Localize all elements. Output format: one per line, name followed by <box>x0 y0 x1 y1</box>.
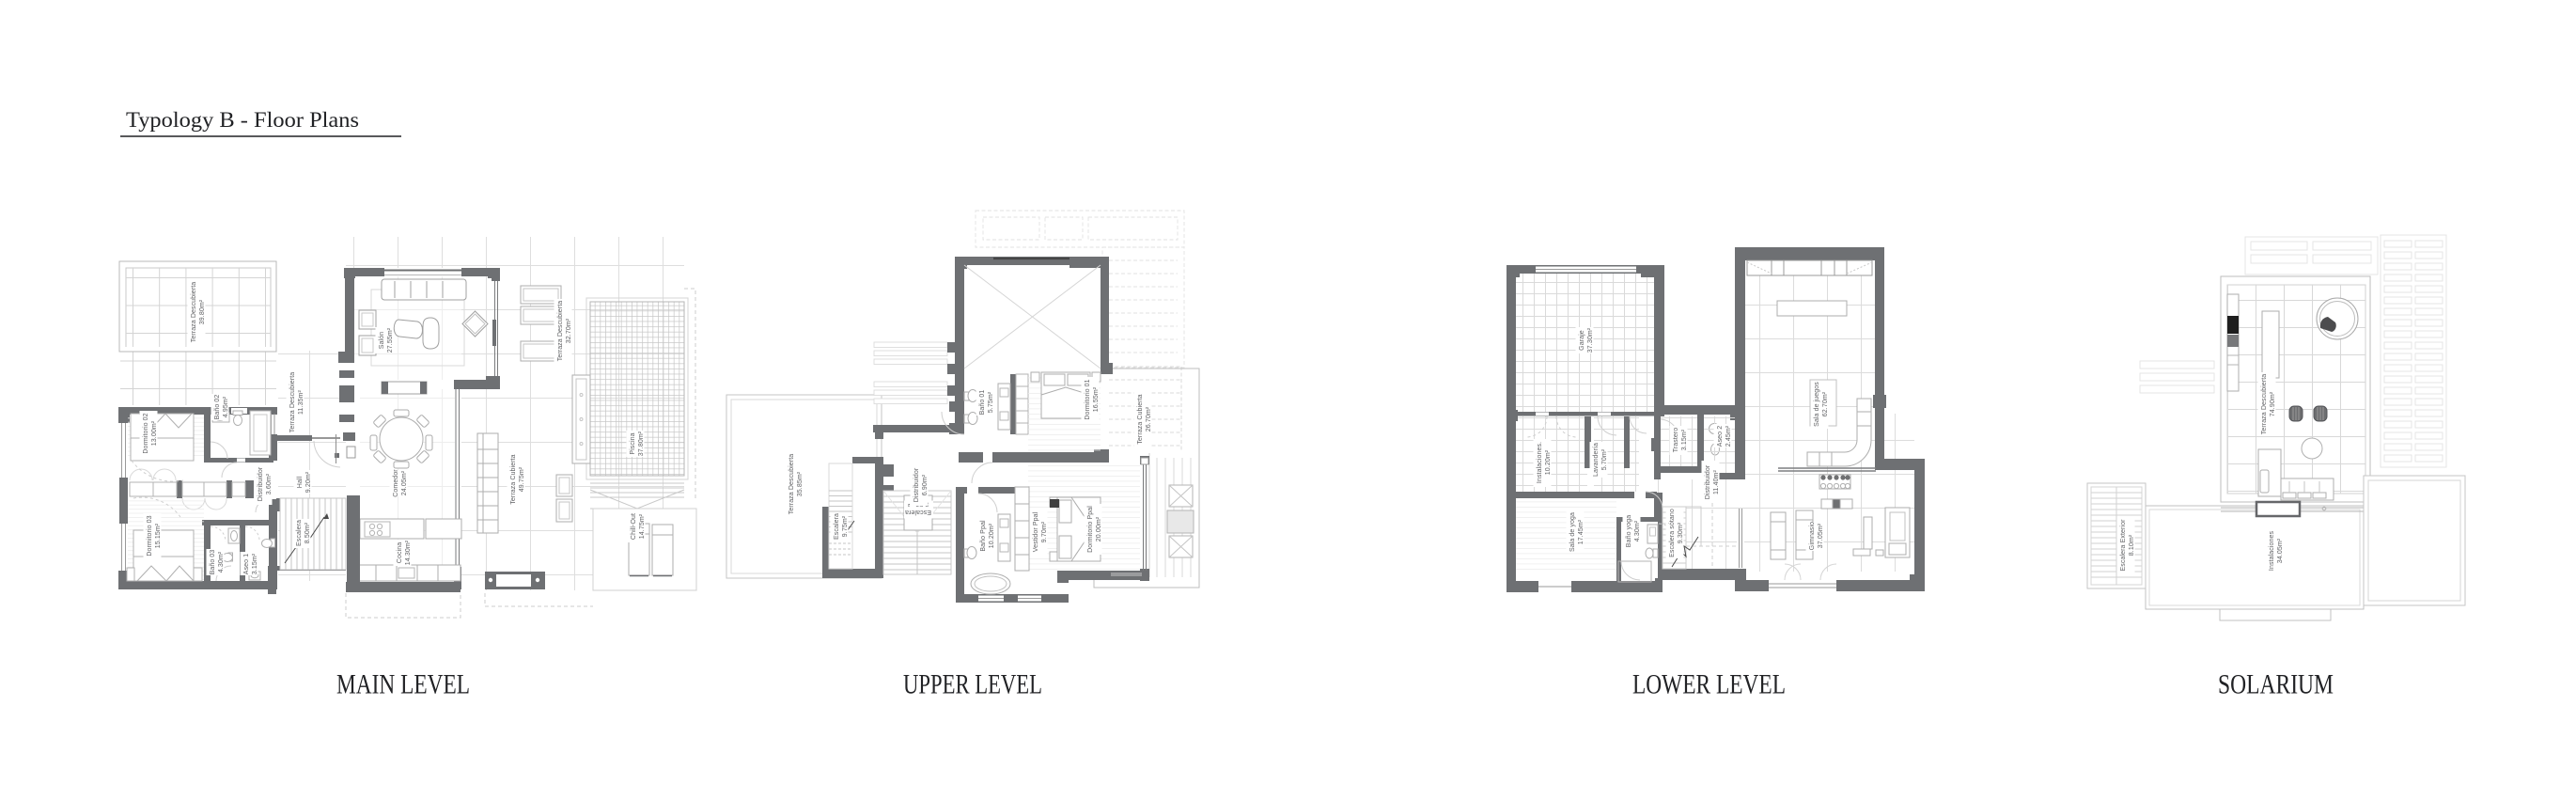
svg-text:14.75m²: 14.75m² <box>639 513 646 539</box>
svg-text:20.00m²: 20.00m² <box>1096 516 1102 541</box>
svg-text:Hall: Hall <box>297 476 304 488</box>
svg-text:13.00m²: 13.00m² <box>151 420 158 446</box>
svg-text:15.15m²: 15.15m² <box>155 523 162 548</box>
svg-text:Terraza Descubierta: Terraza Descubierta <box>557 301 564 362</box>
svg-text:8.50m²: 8.50m² <box>304 522 311 543</box>
svg-text:10.20m²: 10.20m² <box>1545 449 1552 475</box>
svg-text:32.70m²: 32.70m² <box>566 318 572 343</box>
svg-text:Chill-Out: Chill-Out <box>631 513 637 540</box>
svg-text:3.60m²: 3.60m² <box>266 473 273 494</box>
svg-text:39.80m²: 39.80m² <box>199 299 206 324</box>
svg-text:9.75m²: 9.75m² <box>842 515 849 537</box>
svg-text:Aseo 2: Aseo 2 <box>1717 426 1724 447</box>
svg-text:Baño yoga: Baño yoga <box>1626 515 1632 547</box>
svg-text:5.70m²: 5.70m² <box>1601 448 1608 470</box>
svg-text:Distribuidor: Distribuidor <box>258 466 264 501</box>
svg-text:49.75m²: 49.75m² <box>519 466 525 492</box>
svg-text:Instalaciones.: Instalaciones. <box>1537 442 1543 483</box>
svg-text:Baño Ppal: Baño Ppal <box>980 520 987 552</box>
svg-text:Terraza Cubierta: Terraza Cubierta <box>510 454 517 504</box>
svg-text:LOWER LEVEL: LOWER LEVEL <box>1632 669 1786 700</box>
svg-text:Aseo 1: Aseo 1 <box>243 554 250 574</box>
svg-text:Escalera: Escalera <box>296 520 303 546</box>
svg-text:11.40m²: 11.40m² <box>1713 470 1720 494</box>
svg-text:27.55m²: 27.55m² <box>387 327 394 353</box>
svg-text:SOLARIUM: SOLARIUM <box>2218 669 2334 700</box>
svg-text:Terraza Descubierta: Terraza Descubierta <box>788 454 795 515</box>
svg-text:Sala de juegos: Sala de juegos <box>1814 382 1820 427</box>
svg-text:11.35m²: 11.35m² <box>298 390 304 415</box>
svg-text:Vestidor Ppal: Vestidor Ppal <box>1033 511 1039 552</box>
svg-text:4.30m²: 4.30m² <box>218 551 225 573</box>
svg-text:34.05m²: 34.05m² <box>2277 538 2284 563</box>
svg-text:Escalera: Escalera <box>834 513 840 540</box>
svg-text:Gimnasio: Gimnasio <box>1809 522 1816 550</box>
svg-text:Comedor: Comedor <box>393 469 399 497</box>
svg-text:5.75m²: 5.75m² <box>988 391 994 413</box>
svg-text:Dormitorio 01: Dormitorio 01 <box>1085 379 1091 419</box>
svg-text:Terraza Descubierta: Terraza Descubierta <box>2261 374 2268 435</box>
svg-text:Typology B - Floor Plans: Typology B - Floor Plans <box>126 108 359 133</box>
svg-text:Baño 02: Baño 02 <box>214 395 221 420</box>
svg-text:4.95m²: 4.95m² <box>223 396 229 417</box>
svg-text:37.30m²: 37.30m² <box>1587 327 1594 353</box>
svg-text:16.55m²: 16.55m² <box>1093 386 1100 412</box>
svg-text:Distribuidor: Distribuidor <box>913 467 920 502</box>
svg-text:14.30m²: 14.30m² <box>405 540 412 565</box>
svg-text:9.20m²: 9.20m² <box>305 471 312 493</box>
svg-text:37.80m²: 37.80m² <box>638 431 645 456</box>
svg-text:2.45m²: 2.45m² <box>1725 425 1732 447</box>
svg-text:62.70m²: 62.70m² <box>1822 391 1829 416</box>
svg-text:MAIN LEVEL: MAIN LEVEL <box>336 669 470 700</box>
svg-text:8.10m²: 8.10m² <box>2129 534 2135 556</box>
svg-text:Dormitorio 02: Dormitorio 02 <box>143 413 149 453</box>
svg-text:Terraza Descubierta: Terraza Descubierta <box>289 372 296 433</box>
svg-text:Baño 01: Baño 01 <box>979 390 986 416</box>
svg-text:10.20m²: 10.20m² <box>989 523 995 548</box>
svg-text:35.85m²: 35.85m² <box>797 471 804 496</box>
svg-text:Piscina: Piscina <box>630 432 636 454</box>
svg-text:3.15m²: 3.15m² <box>1681 429 1688 450</box>
svg-text:Escalera sótano: Escalera sótano <box>1669 509 1676 557</box>
svg-text:Terraza Descubierta: Terraza Descubierta <box>191 282 197 343</box>
svg-text:Escalera: Escalera <box>905 509 931 515</box>
svg-text:Lavandería: Lavandería <box>1593 443 1600 477</box>
svg-text:Garaje: Garaje <box>1579 330 1585 351</box>
svg-text:9.70m²: 9.70m² <box>1041 521 1048 542</box>
svg-text:Trastero: Trastero <box>1673 428 1679 453</box>
svg-text:Dormitorio 03: Dormitorio 03 <box>147 515 153 556</box>
svg-text:9.30m²: 9.30m² <box>1678 522 1684 543</box>
svg-text:Instalaciones: Instalaciones <box>2269 531 2275 572</box>
svg-text:6.90m²: 6.90m² <box>922 474 929 495</box>
svg-text:Dormitorio Ppal: Dormitorio Ppal <box>1087 506 1094 553</box>
svg-text:Escalera Exterior: Escalera Exterior <box>2120 519 2127 572</box>
svg-text:Salón: Salón <box>379 332 385 349</box>
svg-text:Sala de yoga: Sala de yoga <box>1569 512 1576 552</box>
svg-text:Baño 03: Baño 03 <box>210 550 216 575</box>
svg-text:74.90m²: 74.90m² <box>2270 391 2276 416</box>
svg-text:Distribuidor: Distribuidor <box>1705 464 1711 499</box>
svg-text:4.30m²: 4.30m² <box>1634 520 1641 541</box>
svg-text:Cocina: Cocina <box>397 542 403 563</box>
svg-text:17.45m²: 17.45m² <box>1578 519 1585 544</box>
svg-text:26.70m²: 26.70m² <box>1146 406 1152 431</box>
svg-text:Terraza Cubierta: Terraza Cubierta <box>1137 394 1144 444</box>
svg-text:37.05m²: 37.05m² <box>1818 523 1824 548</box>
svg-text:24.05m²: 24.05m² <box>401 470 408 495</box>
svg-text:UPPER LEVEL: UPPER LEVEL <box>903 669 1042 700</box>
svg-text:3.15m²: 3.15m² <box>252 553 258 574</box>
